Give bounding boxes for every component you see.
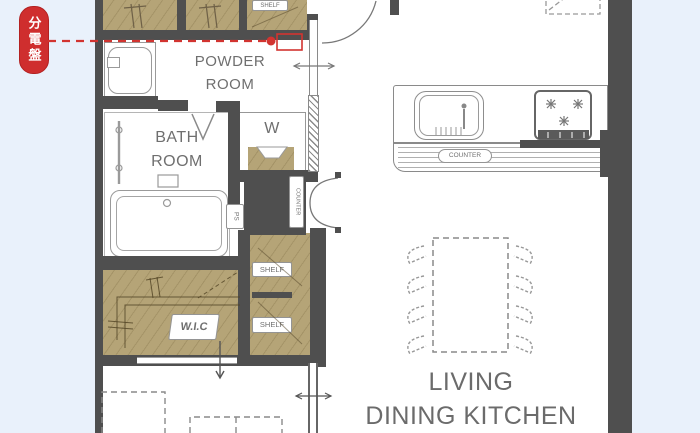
counter-slat	[398, 167, 604, 168]
vanity-basin	[108, 47, 152, 94]
washer-unit	[248, 147, 294, 170]
bath-room-label: BATH ROOM	[128, 126, 226, 174]
wall-kitchen-stub	[600, 130, 608, 177]
bath-room-line1: BATH	[128, 126, 226, 150]
shelf-label-upper-text: SHELF	[260, 266, 284, 274]
top-closet-left	[101, 0, 177, 31]
wic-label-text: W.I.C	[180, 322, 208, 333]
walk-in-closet-area	[103, 268, 242, 355]
distribution-board-badge: 分電盤	[19, 6, 49, 74]
wall-below-vanity	[95, 96, 158, 109]
hall-wall-hatched	[308, 95, 319, 172]
wall-shelf-closet-right	[310, 228, 326, 367]
ldk-line1: LIVING	[340, 365, 602, 399]
counter-slat	[398, 157, 604, 158]
shelf-label-lower-text: SHELF	[260, 321, 284, 329]
closet-counter-label: COUNTER	[289, 176, 304, 228]
stove-grill	[538, 130, 589, 139]
window-wall-bottom	[308, 363, 318, 433]
powder-room-line2: ROOM	[168, 73, 292, 96]
wall-under-stove	[520, 140, 605, 148]
pipe-space-text: PS	[232, 212, 239, 221]
wall-closet-bottom	[95, 30, 318, 40]
kitchen-sink-basin	[419, 95, 479, 136]
distribution-board-badge-text: 分電盤	[28, 16, 41, 64]
kitchen-counter-label: COUNTER	[438, 149, 492, 163]
wall-bath-bottom	[95, 256, 245, 270]
bathtub-inner	[116, 196, 222, 251]
sliding-door-track	[137, 357, 237, 364]
pipe-space-box: PS	[226, 204, 244, 229]
kitchen-counter-text: COUNTER	[449, 153, 481, 160]
closet-counter-text: COUNTER	[294, 188, 300, 215]
wall-right	[608, 0, 632, 433]
wall-closet-divider-2	[239, 0, 247, 31]
wall-shelf-divider	[252, 292, 292, 298]
counter-slat	[398, 162, 604, 163]
powder-room-line1: POWDER	[168, 50, 292, 73]
wall-bath-top-a	[158, 100, 188, 111]
washer-label-text: W	[264, 120, 280, 137]
bath-room-line2: ROOM	[128, 150, 226, 174]
vanity-faucet-icon	[107, 57, 120, 68]
shelf-label-upper: SHELF	[252, 262, 292, 277]
hall-wall-upper	[309, 20, 318, 95]
wall-closet-divider-1	[177, 0, 186, 31]
counter-slat	[398, 152, 604, 153]
wall-bath-right	[228, 101, 240, 207]
shelf-label-lower: SHELF	[252, 317, 292, 333]
powder-room-label: POWDER ROOM	[168, 50, 292, 98]
shelf-label-top-text: SHELF	[260, 3, 279, 9]
wall-left	[95, 0, 103, 433]
shelf-label-top: SHELF	[252, 0, 288, 11]
washer-label: W	[254, 120, 290, 142]
top-closet-middle	[185, 0, 239, 31]
wall-entry-stub-right	[390, 0, 399, 15]
wall-shelf-closet-left	[238, 230, 250, 365]
wic-label: W.I.C	[168, 314, 220, 340]
ldk-line2: DINING KITCHEN	[340, 399, 602, 433]
ldk-label: LIVING DINING KITCHEN	[340, 365, 602, 433]
